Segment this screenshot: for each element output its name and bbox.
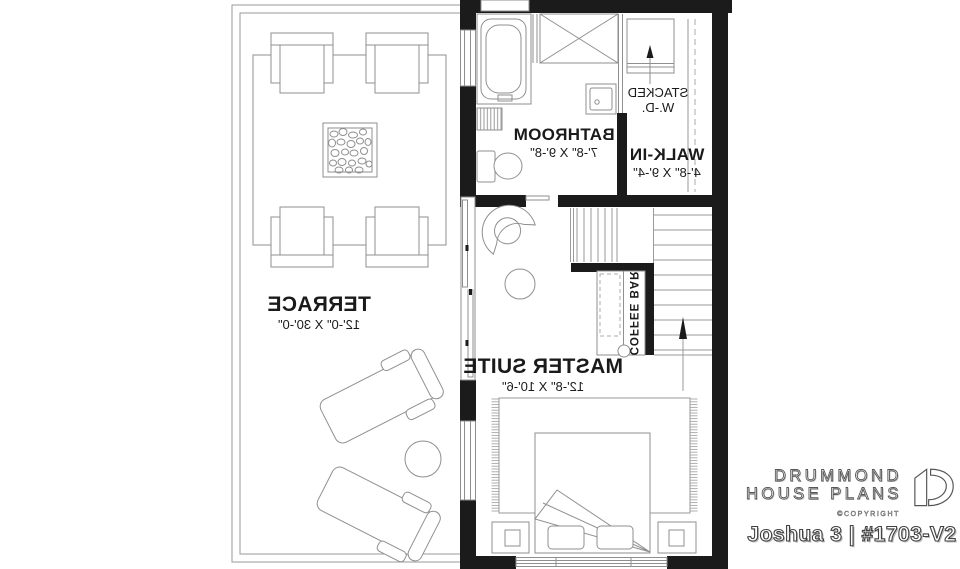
stacked-wd-line1: STACKED — [613, 86, 703, 101]
room-name: MASTER SUITE — [448, 356, 638, 378]
room-dimensions: 12'-8" X 10'-6" — [448, 379, 638, 394]
room-dimensions: 12'-0" X 30'-0" — [239, 317, 399, 332]
room-name: WALK-IN — [607, 146, 727, 164]
stacked-washer-dryer — [627, 19, 674, 84]
label-coffee-bar: COFFEE BAR — [626, 263, 640, 363]
window — [516, 558, 667, 567]
bathroom-vanity — [586, 84, 616, 114]
nightstand — [658, 522, 696, 553]
stacked-wd-line2: W.-D. — [613, 101, 703, 116]
room-label-master-suite: MASTER SUITE 12'-8" X 10'-6" — [448, 356, 638, 394]
room-name: TERRACE — [239, 294, 399, 316]
room-label-terrace: TERRACE 12'-0" X 30'-0" — [239, 294, 399, 332]
window — [461, 30, 476, 86]
logo-line2: HOUSE PLANS — [746, 485, 902, 503]
label-stacked-wd: STACKED W.-D. — [613, 86, 703, 115]
half-wall — [533, 14, 537, 63]
pillow — [548, 526, 584, 549]
room-label-walkin: WALK-IN 4'-8" X 9'-4" — [607, 146, 727, 180]
shower — [540, 14, 618, 63]
chaise-lounge — [314, 342, 449, 454]
bathroom-door — [526, 196, 549, 200]
patio-side-table — [405, 441, 441, 477]
bed — [535, 433, 650, 553]
window — [461, 421, 476, 500]
wall-niche — [481, 0, 529, 11]
nightstand — [492, 522, 529, 553]
branding-block: DRUMMOND HOUSE PLANS ©COPYRIGHT Joshua 3… — [746, 461, 958, 547]
patio-door — [461, 197, 475, 380]
logo-wordmark: DRUMMOND HOUSE PLANS — [746, 461, 902, 503]
room-dimensions: 4'-8" X 9'-4" — [607, 165, 727, 180]
drummond-logo-icon — [907, 461, 958, 509]
floorplan-canvas: TERRACE 12'-0" X 30'-0" BATHROOM 7'-8" X… — [0, 0, 960, 569]
dining-table-set — [253, 33, 446, 267]
dining-chair — [271, 33, 333, 93]
dining-chair — [366, 33, 428, 93]
table-centerpiece — [323, 123, 377, 177]
dining-chair — [366, 207, 428, 267]
pillow — [597, 526, 633, 549]
ottoman — [505, 269, 535, 299]
bathtub — [477, 14, 531, 104]
room-name: BATHROOM — [489, 126, 639, 144]
logo-line1: DRUMMOND — [746, 467, 902, 485]
dining-chair — [271, 207, 333, 267]
copyright-text: ©COPYRIGHT — [746, 511, 900, 518]
plan-id-text: Joshua 3 | #1703-V2 — [746, 523, 958, 547]
logo-row: DRUMMOND HOUSE PLANS — [746, 461, 958, 509]
